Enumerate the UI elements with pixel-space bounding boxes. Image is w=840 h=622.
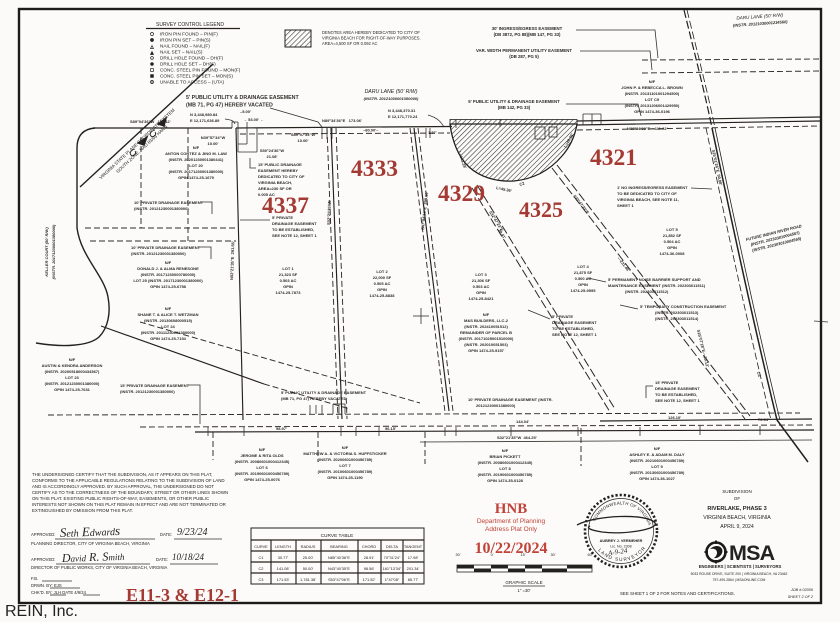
svg-text:C2: C2 [259, 566, 264, 571]
svg-text:LOT 24: LOT 24 [161, 324, 175, 329]
svg-text:CONC. STEEL PIN FOUND – MON(F): CONC. STEEL PIN FOUND – MON(F) [160, 68, 241, 73]
svg-text:1°47'08": 1°47'08" [385, 577, 400, 582]
svg-text:DEDICATED TO CITY OF: DEDICATED TO CITY OF [258, 174, 305, 179]
svg-text:GPIN 1474-35-0128: GPIN 1474-35-0128 [487, 478, 524, 483]
svg-text:4321: 4321 [590, 145, 637, 171]
svg-text:M&S BUILDERS, LLC-2: M&S BUILDERS, LLC-2 [464, 318, 509, 323]
svg-text:N43°40'35"E: N43°40'35"E [328, 566, 350, 571]
svg-text:5' PUBLIC UTILITY & DRAINAGE E: 5' PUBLIC UTILITY & DRAINAGE EASEMENT [281, 390, 367, 395]
svg-text:4337: 4337 [262, 193, 309, 219]
svg-text:BRIAN PICKETT: BRIAN PICKETT [490, 454, 521, 459]
svg-text:S89°04'36"W 115.42': S89°04'36"W 115.42' [130, 119, 171, 124]
svg-text:1" =30': 1" =30' [518, 588, 531, 593]
svg-text:F.B.: F.B. [31, 576, 38, 581]
svg-text:NAIL FOUND – NAIL(F): NAIL FOUND – NAIL(F) [160, 44, 210, 49]
svg-text:RADIUS: RADIUS [301, 544, 316, 549]
svg-text:25.00': 25.00' [303, 555, 314, 560]
svg-text:15' PUBLIC DRAINAGE: 15' PUBLIC DRAINAGE [258, 162, 302, 167]
svg-text:171.52': 171.52' [363, 577, 376, 582]
svg-text:(MB 142, PG 33): (MB 142, PG 33) [498, 105, 531, 110]
svg-text:(INSTR. 20121230001380000): (INSTR. 20121230001380000) [131, 251, 186, 256]
svg-text:LOT C9: LOT C9 [645, 97, 660, 102]
svg-text:LOT 25 (INSTR. 201712300013800: LOT 25 (INSTR. 20171230001380000) [133, 278, 203, 283]
svg-text:TANGENT: TANGENT [404, 544, 423, 549]
svg-text:DRAINAGE EASEMENT: DRAINAGE EASEMENT [272, 221, 317, 226]
svg-text:MAINTENANCE EASEMENT (INSTR. 2: MAINTENANCE EASEMENT (INSTR. 20230301151… [608, 283, 706, 288]
svg-text:(INSTR. 202303011513): (INSTR. 202303011513) [655, 310, 699, 315]
svg-text:LOT 2: LOT 2 [376, 269, 388, 274]
svg-text:TO BE ESTABLISHED,: TO BE ESTABLISHED, [272, 227, 314, 232]
svg-text:0.505 AC: 0.505 AC [374, 281, 391, 286]
svg-text:N/F: N/F [193, 145, 200, 150]
svg-text:10.00': 10.00' [208, 141, 219, 146]
svg-text:LOT 8: LOT 8 [499, 466, 511, 471]
svg-text:RIVERLAKE, PHASE 3: RIVERLAKE, PHASE 3 [707, 506, 766, 512]
svg-text:22,000 SF: 22,000 SF [373, 275, 392, 280]
svg-text:N 3,448,980.84: N 3,448,980.84 [190, 112, 218, 117]
svg-text:(INSTR. 20201230001380441): (INSTR. 20201230001380441) [169, 157, 224, 162]
svg-text:1,781.38': 1,781.38' [300, 577, 316, 582]
svg-text:AND IS ACCORDINGLY APPROVED.: AND IS ACCORDINGLY APPROVED. BY SUCH APP… [32, 484, 214, 489]
svg-text:98.56': 98.56' [364, 566, 375, 571]
svg-text:(DB 287, PG 5): (DB 287, PG 5) [509, 54, 539, 59]
svg-text:DRILL HOLE SET – DH(S): DRILL HOLE SET – DH(S) [160, 62, 216, 67]
svg-text:E11-3 & E12-1: E11-3 & E12-1 [126, 585, 239, 605]
svg-text:1474-25-8838: 1474-25-8838 [370, 293, 396, 298]
svg-text:N/F: N/F [654, 446, 661, 451]
svg-text:APRIL 9, 2024: APRIL 9, 2024 [720, 524, 754, 530]
svg-text:SHEET 2 OF 2: SHEET 2 OF 2 [788, 595, 814, 599]
svg-text:15': 15' [521, 553, 526, 557]
svg-text:GPIN: GPIN [476, 290, 486, 295]
svg-text:JEROME & RITA OLDS: JEROME & RITA OLDS [240, 453, 283, 458]
svg-text:5' PERMANENT NOISE BARRIER SUP: 5' PERMANENT NOISE BARRIER SUPPORT AND [608, 277, 701, 282]
svg-text:VIRGINIA BEACH, VIRGINIA: VIRGINIA BEACH, VIRGINIA [703, 515, 771, 521]
svg-text:Address Plat Only: Address Plat Only [485, 526, 538, 533]
svg-text:0.504 AC: 0.504 AC [664, 239, 681, 244]
svg-text:5033 ROUSE DRIVE, SUITE 200 |: 5033 ROUSE DRIVE, SUITE 200 | VIRGINIA B… [691, 572, 788, 576]
svg-text:S32°21'35"W 464.25': S32°21'35"W 464.25' [497, 435, 537, 440]
svg-text:N/F: N/F [165, 306, 172, 311]
svg-text:GPIN: GPIN [283, 284, 293, 289]
svg-text:1474-25-7873: 1474-25-7873 [276, 290, 302, 295]
svg-text:201.34': 201.34' [407, 566, 420, 571]
svg-text:VIRGINIA BEACH FOR RIGHT-OF-WA: VIRGINIA BEACH FOR RIGHT-OF-WAY PURPOSES… [322, 36, 421, 41]
svg-text:N/F: N/F [502, 448, 509, 453]
svg-text:INTERESTS NOT SHOWN ON THIS PL: INTERESTS NOT SHOWN ON THIS PLAT REMAIN … [32, 502, 226, 507]
svg-text:20121230001380000): 20121230001380000) [476, 403, 516, 408]
svg-text:28.91': 28.91' [364, 555, 375, 560]
svg-text:0': 0' [491, 553, 494, 557]
svg-text:(INSTR. 20121230001380000): (INSTR. 20121230001380000) [120, 389, 175, 394]
svg-text:(INSTR. 20200518000434567): (INSTR. 20200518000434567) [45, 369, 100, 374]
svg-text:126.10': 126.10' [668, 415, 681, 420]
svg-text:9/23/24: 9/23/24 [177, 527, 208, 538]
svg-text:ON THIS PLAT. EXISTING PUBLIC: ON THIS PLAT. EXISTING PUBLIC RIGHTS-OF-… [32, 496, 209, 501]
svg-text:SURVEY CONTROL LEGEND: SURVEY CONTROL LEGEND [156, 22, 224, 28]
svg-text:MSA: MSA [729, 541, 775, 565]
svg-text:–80.00'–: –80.00'– [363, 128, 379, 133]
svg-text:4325: 4325 [519, 197, 563, 222]
svg-text:LOT 1: LOT 1 [282, 266, 294, 271]
svg-text:E 12,171,770.24: E 12,171,770.24 [388, 114, 418, 119]
svg-text:15' PRIVATE: 15' PRIVATE [655, 380, 679, 385]
svg-text:LOT 5: LOT 5 [666, 227, 678, 232]
svg-text:(INSTR. 20121230001380000): (INSTR. 20121230001380000) [45, 381, 100, 386]
svg-text:EASEMENT HEREBY: EASEMENT HEREBY [258, 168, 298, 173]
svg-text:NAIL SET – NAIL(S): NAIL SET – NAIL(S) [160, 50, 203, 55]
svg-text:161°13'34": 161°13'34" [383, 566, 402, 571]
svg-text:30': 30' [456, 553, 461, 557]
svg-text:15' PRIVATE DRAINAGE EASEMENT: 15' PRIVATE DRAINAGE EASEMENT [120, 383, 190, 388]
svg-text:GPIN 1474-36-1027: GPIN 1474-36-1027 [639, 476, 676, 481]
svg-text:GPIN 1474-25-7154: GPIN 1474-25-7154 [150, 336, 187, 341]
svg-text:GPIN: GPIN [377, 287, 387, 292]
svg-text:E 12,171,636.89: E 12,171,636.89 [190, 118, 220, 123]
svg-text:GPIN: GPIN [578, 282, 588, 287]
svg-text:(INSTR. 20171230001380000): (INSTR. 20171230001380000) [169, 169, 224, 174]
svg-text:Department of Planning: Department of Planning [477, 518, 546, 525]
svg-text:(INSTR. 20130608000515): (INSTR. 20130608000515) [144, 318, 193, 323]
svg-text:10.00': 10.00' [298, 138, 309, 143]
svg-text:N/F: N/F [259, 447, 266, 452]
svg-text:SHEET 1: SHEET 1 [617, 203, 634, 208]
svg-text:DRWN. BY: EJS: DRWN. BY: EJS [31, 583, 62, 588]
svg-text:KELLER COURT (50' R/W): KELLER COURT (50' R/W) [44, 227, 49, 277]
svg-text:70°31'24": 70°31'24" [384, 555, 401, 560]
svg-text:APPROVED:: APPROVED: [31, 532, 55, 537]
svg-text:C3: C3 [259, 577, 264, 582]
svg-text:TO BE DEDICATED TO CITY OF: TO BE DEDICATED TO CITY OF [617, 191, 677, 196]
svg-text:144.04': 144.04' [516, 419, 529, 424]
svg-text:(INSTR. 20121030001380000): (INSTR. 20121030001380000) [364, 96, 419, 101]
svg-text:171.53': 171.53' [277, 577, 290, 582]
svg-text:–5.00': –5.00' [240, 109, 251, 114]
svg-text:S89°57'34"W: S89°57'34"W [291, 132, 315, 137]
svg-text:VIRGINIA BEACH,: VIRGINIA BEACH, [258, 180, 292, 185]
svg-text:(INSTR. 20190601000456789): (INSTR. 20190601000456789) [235, 471, 290, 476]
svg-text:LOT 4: LOT 4 [577, 264, 589, 269]
svg-text:(INSTR. 20171025001510000): (INSTR. 20171025001510000) [459, 336, 514, 341]
svg-text:AUSTIN & KENDRA ANDERSON: AUSTIN & KENDRA ANDERSON [42, 363, 103, 368]
svg-text:GPIN 1474-25-6758: GPIN 1474-25-6758 [150, 284, 187, 289]
svg-text:GPIN 1474-25-1679: GPIN 1474-25-1679 [178, 175, 215, 180]
svg-text:LOT 3: LOT 3 [475, 272, 487, 277]
svg-text:10' PRIVATE DRAINAGE EASEMENT: 10' PRIVATE DRAINAGE EASEMENT [134, 200, 204, 205]
svg-text:(MB 71, PG 47) HEREBY VACATED: (MB 71, PG 47) HEREBY VACATED [186, 103, 273, 109]
svg-text:98.97': 98.97' [276, 426, 287, 431]
svg-text:CURVE TABLE: CURVE TABLE [321, 533, 354, 539]
svg-text:(INSTR. 202410051512): (INSTR. 202410051512) [464, 324, 508, 329]
svg-text:REMAINDER OF PARCEL B: REMAINDER OF PARCEL B [460, 330, 512, 335]
svg-text:SUBDIVISION: SUBDIVISION [722, 489, 752, 494]
svg-text:(MB 71, PG 47) HEREBY VACATED: (MB 71, PG 47) HEREBY VACATED [281, 396, 347, 401]
svg-text:DENOTES AREA HEREBY DEDICATED: DENOTES AREA HEREBY DEDICATED TO CITY OF [322, 30, 420, 35]
svg-text:4329: 4329 [438, 181, 485, 207]
svg-text:LENGTH: LENGTH [275, 544, 291, 549]
svg-text:(INSTR. 20131101001294500): (INSTR. 20131101001294500) [625, 91, 680, 96]
svg-text:(INSTR. 20171230001380000): (INSTR. 20171230001380000) [51, 224, 56, 279]
svg-text:DATE:: DATE: [160, 532, 172, 537]
svg-text:DRAINAGE EASEMENT: DRAINAGE EASEMENT [552, 320, 597, 325]
svg-text:REIN, Inc.: REIN, Inc. [5, 603, 78, 620]
svg-text:N/F: N/F [69, 357, 76, 362]
svg-text:MATTHEW A. & VICTORIA S. HUFFS: MATTHEW A. & VICTORIA S. HUFFSTICKER [303, 451, 386, 456]
svg-text:S50°24'36"W: S50°24'36"W [260, 148, 284, 153]
svg-text:N85°40'36"E: N85°40'36"E [328, 555, 350, 560]
svg-text:141.08': 141.08' [277, 566, 290, 571]
svg-text:AREA=4,500 SF OR 0.092 AC: AREA=4,500 SF OR 0.092 AC [322, 41, 377, 46]
svg-text:ASHLEY E. & ADAM M. DALY: ASHLEY E. & ADAM M. DALY [629, 452, 685, 457]
svg-text:APPROVED:: APPROVED: [31, 557, 55, 562]
svg-text:N/F: N/F [165, 260, 172, 265]
svg-text:(DB 3872, PG 88)(MB 147, PG 33: (DB 3872, PG 88)(MB 147, PG 33) [494, 32, 561, 37]
svg-text:(INSTR. 20121230001380000): (INSTR. 20121230001380000) [134, 206, 189, 211]
svg-text:(INSTR. 20171230000780000): (INSTR. 20171230000780000) [141, 272, 196, 277]
svg-text:N39°57'34"W: N39°57'34"W [201, 135, 226, 140]
svg-text:30.77': 30.77' [278, 555, 289, 560]
svg-text:(INSTR. 202303011514): (INSTR. 202303011514) [655, 316, 699, 321]
svg-text:21,306 SF: 21,306 SF [472, 278, 491, 283]
svg-text:GPIN 1474-25-9157: GPIN 1474-25-9157 [468, 348, 505, 353]
svg-text:AREA=230 SF OR: AREA=230 SF OR [258, 186, 292, 191]
svg-text:TO BE ESTABLISHED,: TO BE ESTABLISHED, [552, 326, 594, 331]
svg-text:JOHN P. & REBECCA L. BROWN: JOHN P. & REBECCA L. BROWN [621, 85, 683, 90]
svg-text:LOT 20: LOT 20 [189, 163, 203, 168]
svg-text:(INSTR. 20080601000412345): (INSTR. 20080601000412345) [235, 459, 290, 464]
svg-text:GRAPHIC SCALE: GRAPHIC SCALE [505, 580, 542, 585]
svg-text:CONC. STEEL PIN SET – MON(S): CONC. STEEL PIN SET – MON(S) [160, 74, 233, 79]
svg-text:DARU LANE (50' R/W): DARU LANE (50' R/W) [365, 89, 418, 95]
svg-text:21.08': 21.08' [267, 154, 278, 159]
svg-text:N/F: N/F [483, 312, 490, 317]
svg-text:HNB: HNB [495, 501, 528, 517]
svg-text:SEE NOTE 12, SHEET 1: SEE NOTE 12, SHEET 1 [552, 332, 597, 337]
svg-text:757-490-2864 | MSAONLINE.COM: 757-490-2864 | MSAONLINE.COM [713, 578, 766, 582]
svg-text:VIRGINIA BEACH, SEE NOTE 11,: VIRGINIA BEACH, SEE NOTE 11, [617, 197, 679, 202]
svg-text:C1: C1 [259, 555, 264, 560]
svg-text:S53°47'06"E: S53°47'06"E [328, 577, 350, 582]
svg-text:SEE NOTE 12, SHEET 1: SEE NOTE 12, SHEET 1 [655, 398, 700, 403]
svg-text:10/22/2024: 10/22/2024 [475, 540, 548, 557]
svg-text:1474-36-0008: 1474-36-0008 [660, 251, 686, 256]
svg-text:PLANNING DIRECTOR, CITY OF VIR: PLANNING DIRECTOR, CITY OF VIRGINIA BEAC… [31, 541, 150, 546]
svg-text:1.37': 1.37' [428, 130, 437, 135]
svg-text:DRAINAGE EASEMENT: DRAINAGE EASEMENT [655, 386, 700, 391]
svg-text:5' PUBLIC UTILITY & DRAINAGE E: 5' PUBLIC UTILITY & DRAINAGE EASEMENT [186, 95, 299, 101]
svg-text:N89°34'36"E 173.06': N89°34'36"E 173.06' [322, 118, 362, 123]
svg-text:AUBREY J. VERMEHER: AUBREY J. VERMEHER [600, 539, 643, 543]
svg-text:1474-25-8421: 1474-25-8421 [469, 296, 495, 301]
svg-text:TO BE ESTABLISHED,: TO BE ESTABLISHED, [655, 392, 697, 397]
svg-text:GPIN: GPIN [667, 245, 677, 250]
svg-text:(INSTR. 20210601000456789): (INSTR. 20210601000456789) [630, 458, 685, 463]
svg-text:CONFORMS TO THE APPLICABLE REG: CONFORMS TO THE APPLICABLE REGULATIONS R… [32, 478, 225, 483]
svg-text:(INSTR. 20080601000412345): (INSTR. 20080601000412345) [478, 460, 533, 465]
svg-text:72.34': 72.34' [758, 417, 769, 422]
svg-text:N 3,448,370.31: N 3,448,370.31 [388, 108, 416, 113]
svg-text:DRILL HOLE FOUND – DH(F): DRILL HOLE FOUND – DH(F) [160, 56, 224, 61]
svg-text:10' PRIVATE DRAINAGE EASEMENT: 10' PRIVATE DRAINAGE EASEMENT (INSTR. [468, 397, 553, 402]
svg-text:EXTINGUISHED BY OMISSION FROM: EXTINGUISHED BY OMISSION FROM THIS PLAT. [32, 508, 133, 513]
svg-text:CERTIFY AS TO THE CORRECTNESS: CERTIFY AS TO THE CORRECTNESS OF THE BOU… [32, 490, 228, 495]
svg-text:CURVE: CURVE [254, 544, 268, 549]
svg-text:(INSTR. 202010051503): (INSTR. 202010051503) [464, 342, 508, 347]
svg-text:21,852 SF: 21,852 SF [663, 233, 682, 238]
svg-text:UNABLE TO ACCESS – (UTA): UNABLE TO ACCESS – (UTA) [160, 80, 225, 85]
svg-text:50.00': 50.00' [303, 566, 314, 571]
svg-text:BEARING: BEARING [330, 544, 348, 549]
svg-text:IRON PIN SET – PIN(S): IRON PIN SET – PIN(S) [160, 38, 211, 43]
svg-text:30': 30' [551, 553, 556, 557]
svg-text:DATE:: DATE: [156, 557, 168, 562]
svg-text:DONALD J. & ALMA RENESONE: DONALD J. & ALMA RENESONE [137, 266, 199, 271]
svg-text:1' NO INGRESS/EGRESS EASEMENT: 1' NO INGRESS/EGRESS EASEMENT [617, 185, 688, 190]
svg-text:SEE SHEET 1 OF 2 FOR NOTES AND: SEE SHEET 1 OF 2 FOR NOTES AND CERTIFICA… [620, 591, 735, 596]
svg-text:ANTON CORTEZ & JING M. LAW: ANTON CORTEZ & JING M. LAW [165, 151, 227, 156]
svg-text:10' PRIVATE DRAINAGE EASEMENT: 10' PRIVATE DRAINAGE EASEMENT [131, 245, 201, 250]
svg-text:ENGINEERS | SCIENTISTS | SURVE: ENGINEERS | SCIENTISTS | SURVEYORS [699, 564, 782, 569]
svg-text:17.98': 17.98' [408, 555, 419, 560]
svg-text:SEE NOTE 12, SHEET 1: SEE NOTE 12, SHEET 1 [272, 233, 317, 238]
svg-text:LOT 23: LOT 23 [65, 375, 79, 380]
svg-text:IRON PIN FOUND – PIN(F): IRON PIN FOUND – PIN(F) [160, 32, 218, 37]
svg-text:0.503 AC: 0.503 AC [280, 278, 297, 283]
svg-text:(INSTR. 202303011512): (INSTR. 202303011512) [625, 289, 669, 294]
svg-text:GPIN 1474-25-0076: GPIN 1474-25-0076 [244, 477, 281, 482]
svg-text:GPIN 1474-25-7631: GPIN 1474-25-7631 [54, 387, 91, 392]
svg-text:DIRECTOR OF PUBLIC WORKS, CITY: DIRECTOR OF PUBLIC WORKS, CITY OF VIRGIN… [31, 565, 168, 570]
svg-text:LOT 9: LOT 9 [651, 464, 663, 469]
svg-text:5' PRIVATE: 5' PRIVATE [552, 314, 573, 319]
svg-text:85.77': 85.77' [408, 577, 419, 582]
svg-text:5' TEMPORARY CONSTRUCTION EASE: 5' TEMPORARY CONSTRUCTION EASEMENT [640, 304, 727, 309]
svg-text:SHANE T. & ALICE T. WETZMAN: SHANE T. & ALICE T. WETZMAN [138, 312, 199, 317]
svg-text:N/F: N/F [649, 79, 656, 84]
svg-text:(INSTR. 20190601000456789): (INSTR. 20190601000456789) [478, 472, 533, 477]
svg-text:30' INGRESS/EGRESS EASEMENT: 30' INGRESS/EGRESS EASEMENT [492, 26, 563, 31]
svg-text:0.503 AC: 0.503 AC [473, 284, 490, 289]
svg-text:10/18/24: 10/18/24 [172, 552, 205, 562]
svg-text:N/F: N/F [342, 445, 349, 450]
svg-text:S02°21'35"W: S02°21'35"W [326, 200, 332, 225]
svg-text:LOT 7: LOT 7 [339, 463, 351, 468]
svg-text:DELTA: DELTA [386, 544, 398, 549]
svg-text:VAR. WIDTH PERMANENT UTILITY E: VAR. WIDTH PERMANENT UTILITY EASEMENT [476, 48, 572, 53]
svg-text:4333: 4333 [351, 156, 398, 182]
svg-text:(INSTR. 20200601000456789): (INSTR. 20200601000456789) [318, 457, 373, 462]
svg-text:OF: OF [734, 496, 741, 501]
svg-text:21,875 SF: 21,875 SF [574, 270, 593, 275]
svg-text:CHORD: CHORD [362, 544, 376, 549]
svg-text:THE UNDERSIGNED CERTIFY THAT T: THE UNDERSIGNED CERTIFY THAT THE SUBDIVI… [32, 472, 212, 477]
svg-text:CHK'D. BY: JLH DATE 4/9: CHK'D. BY: JLH DATE 4/9/24 [31, 590, 87, 595]
svg-text:(INSTR. 20100601000456789): (INSTR. 20100601000456789) [318, 469, 373, 474]
svg-text:21,323 SF: 21,323 SF [279, 272, 298, 277]
svg-text:5' PUBLIC UTILITY & DRAINAGE E: 5' PUBLIC UTILITY & DRAINAGE EASEMENT [468, 99, 560, 104]
svg-text:GPIN 1474-25-1190: GPIN 1474-25-1190 [327, 475, 363, 480]
svg-text:JOB # 02006: JOB # 02006 [790, 588, 814, 592]
svg-text:(INSTR. 20130601000456789): (INSTR. 20130601000456789) [630, 470, 685, 475]
svg-text:→ 53.00' ←: → 53.00' ← [243, 117, 264, 122]
svg-text:1474-25-9595: 1474-25-9595 [571, 288, 597, 293]
svg-text:(INSTR. 20111230001380000): (INSTR. 20111230001380000) [141, 330, 196, 335]
svg-text:96.15': 96.15' [385, 426, 396, 431]
svg-text:LOT 6: LOT 6 [256, 465, 268, 470]
